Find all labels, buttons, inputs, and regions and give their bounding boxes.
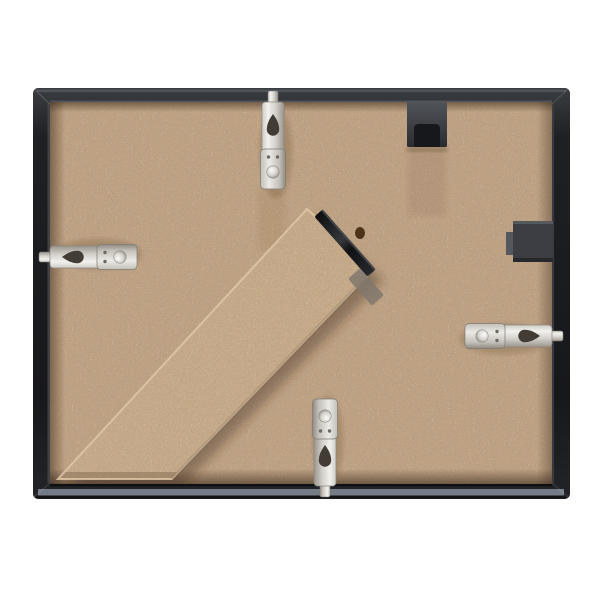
rivet-hole xyxy=(103,251,106,254)
picture-frame-back-photo: Rear view of a black picture frame: tan … xyxy=(0,0,600,600)
rivet-dome xyxy=(476,330,488,342)
inner-shadow-left xyxy=(50,102,65,484)
rivet-hole xyxy=(276,155,279,158)
frame-bottom-edge xyxy=(36,496,566,499)
bracket-top-shadow xyxy=(407,147,447,152)
product-photo: Rear view of a black picture frame: tan … xyxy=(0,0,600,600)
rivet-hole xyxy=(103,260,106,263)
rivet-hole xyxy=(495,330,498,333)
rivet-dome xyxy=(267,166,279,178)
bracket-side-highlight xyxy=(513,221,553,224)
frame-inner-lip-left xyxy=(48,103,51,483)
wood-knot xyxy=(355,227,365,239)
rivet-hole xyxy=(267,155,270,158)
hanging-bracket-top xyxy=(407,101,447,152)
frame-top-highlight xyxy=(37,90,566,93)
inner-shadow-top xyxy=(50,102,552,112)
bracket-side-body xyxy=(513,221,553,262)
smudge-streak xyxy=(408,146,446,216)
rivet-hole xyxy=(319,429,322,432)
inner-shadow-right xyxy=(537,102,552,484)
rivet-dome xyxy=(114,251,126,263)
rivet-hole xyxy=(328,429,331,432)
bracket-side-dark-edge xyxy=(513,258,553,262)
hanging-bracket-side xyxy=(506,221,553,262)
frame-bottom-reflection xyxy=(38,489,564,496)
bracket-top-slot xyxy=(414,124,440,147)
rivet-dome xyxy=(319,410,331,422)
rivet-hole xyxy=(495,339,498,342)
